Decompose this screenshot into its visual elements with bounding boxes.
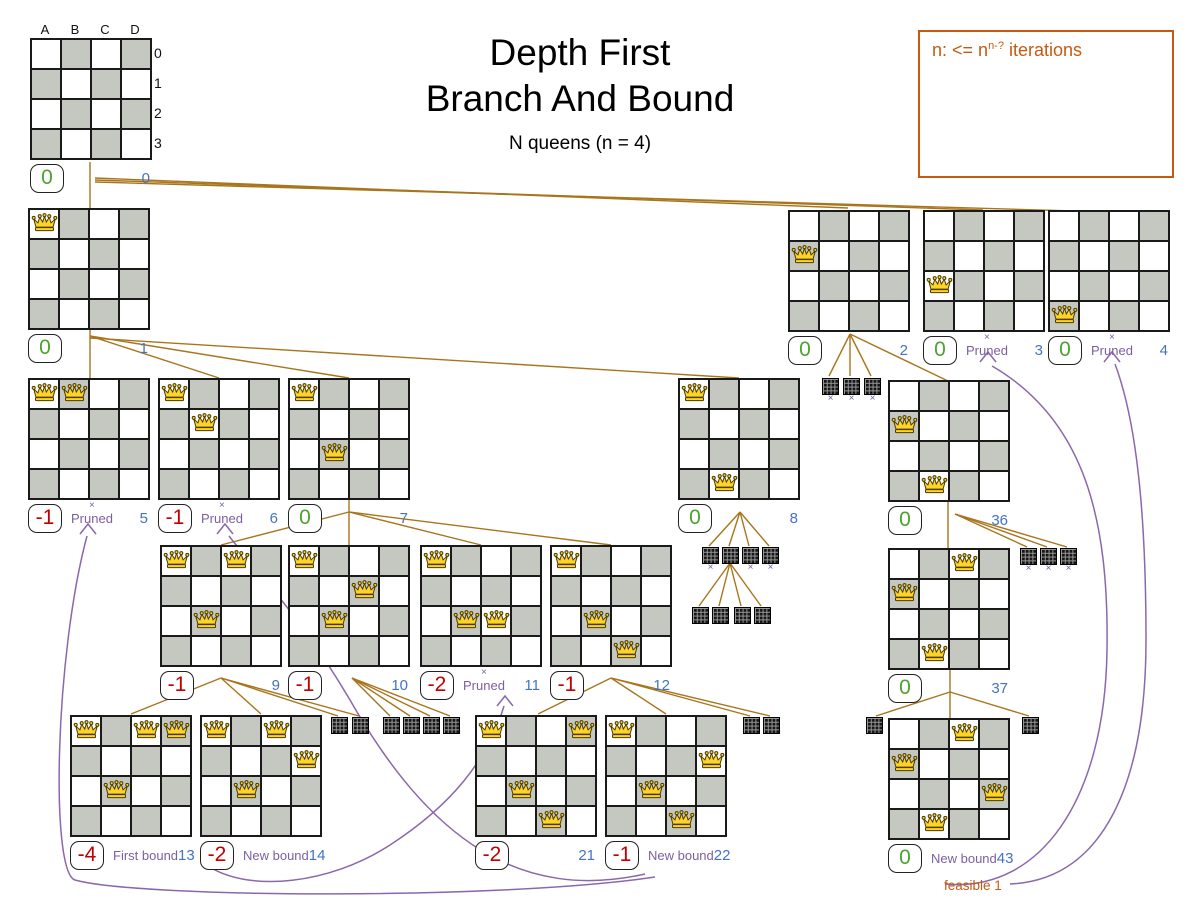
board-cell — [289, 379, 319, 409]
queen-icon — [291, 383, 318, 405]
tree-node-1: 0 1 — [28, 208, 150, 364]
board-cell — [201, 776, 231, 806]
chessboard — [888, 718, 1010, 840]
board-cell — [819, 211, 849, 241]
board-cell — [159, 439, 189, 469]
queen-icon — [613, 640, 640, 662]
pruned-x-mark: × — [1046, 563, 1052, 574]
node-footer: -1 ×Pruned 5 — [28, 502, 150, 534]
score-badge: -2 — [475, 841, 509, 870]
queen-icon — [73, 720, 100, 742]
board-cell — [161, 546, 191, 576]
tree-node-12: -1 12 — [550, 545, 672, 701]
board-cell — [506, 746, 536, 776]
board-cell — [219, 469, 249, 499]
feasible-label: feasible 1 — [944, 878, 1002, 893]
board-cell — [119, 379, 149, 409]
board-cell — [349, 606, 379, 636]
node-footer: 0 ×Pruned 3 — [923, 334, 1045, 366]
chessboard — [288, 545, 410, 667]
node-id: 1 — [140, 340, 150, 357]
board-cell — [379, 606, 409, 636]
board-cell — [849, 241, 879, 271]
board-cell — [101, 716, 131, 746]
queen-icon — [31, 383, 58, 405]
board-cell — [29, 299, 59, 329]
node-id: 10 — [391, 677, 410, 694]
mini-board-icon — [1022, 717, 1039, 734]
board-cell — [919, 639, 949, 669]
board-cell — [59, 239, 89, 269]
queen-icon — [951, 723, 978, 745]
board-cell — [1139, 271, 1169, 301]
score-badge: -1 — [158, 504, 192, 533]
board-cell — [666, 806, 696, 836]
queen-icon — [203, 720, 230, 742]
queen-icon — [193, 610, 220, 632]
legend-text-prefix: n: <= n — [932, 40, 988, 60]
board-cell — [231, 776, 261, 806]
board-cell — [641, 606, 671, 636]
tree-node-3: 0 ×Pruned 3 — [923, 210, 1045, 366]
board-cell — [319, 379, 349, 409]
board-cell — [919, 719, 949, 749]
board-cell — [789, 271, 819, 301]
board-cell — [481, 546, 511, 576]
board-cell — [819, 301, 849, 331]
board-cell — [636, 776, 666, 806]
score-badge: -2 — [420, 671, 454, 700]
mini-board-icon: × — [742, 547, 759, 564]
board-cell — [59, 299, 89, 329]
board-cell — [511, 636, 541, 666]
board-cell — [709, 379, 739, 409]
board-cell — [1139, 211, 1169, 241]
board-cell — [611, 606, 641, 636]
queen-icon — [638, 780, 665, 802]
board-cell — [29, 209, 59, 239]
board-cell — [319, 606, 349, 636]
board-cell — [919, 609, 949, 639]
board-cell — [679, 469, 709, 499]
mini-board-icon: × — [1040, 548, 1057, 565]
board-cell — [101, 746, 131, 776]
board-cell — [949, 749, 979, 779]
node-id: 6 — [270, 510, 280, 527]
node-status-label: ×Pruned — [201, 511, 243, 526]
board-cell — [511, 606, 541, 636]
board-cell — [289, 606, 319, 636]
node-status-label: New bound — [648, 848, 714, 863]
board-cell — [679, 439, 709, 469]
board-cell — [261, 746, 291, 776]
queen-icon — [423, 550, 450, 572]
board-cell — [919, 471, 949, 501]
board-cell — [566, 806, 596, 836]
board-cell — [131, 776, 161, 806]
board-cell — [191, 546, 221, 576]
board-cell — [566, 746, 596, 776]
board-cell — [289, 409, 319, 439]
board-cell — [636, 746, 666, 776]
score-badge: -1 — [288, 671, 322, 700]
board-cell — [984, 241, 1014, 271]
node-id: 9 — [272, 677, 282, 694]
board-cell — [31, 69, 61, 99]
board-cell — [121, 99, 151, 129]
board-cell — [59, 469, 89, 499]
board-cell — [289, 546, 319, 576]
board-cell — [949, 411, 979, 441]
board-cell — [984, 271, 1014, 301]
tree-node-5: -1 ×Pruned 5 — [28, 378, 150, 534]
board-cell — [551, 576, 581, 606]
board-cell — [221, 546, 251, 576]
board-cell — [219, 409, 249, 439]
board-cell — [919, 441, 949, 471]
pruned-x-mark: × — [1066, 563, 1072, 574]
board-cell — [289, 576, 319, 606]
queen-icon — [263, 720, 290, 742]
board-cell — [161, 576, 191, 606]
chessboard — [923, 210, 1045, 332]
board-cell — [119, 209, 149, 239]
board-cell — [379, 379, 409, 409]
board-cell — [59, 209, 89, 239]
board-cell — [949, 381, 979, 411]
chessboard — [788, 210, 910, 332]
queen-icon — [981, 783, 1008, 805]
board-cell — [251, 546, 281, 576]
board-cell — [849, 301, 879, 331]
board-cell — [636, 806, 666, 836]
board-cell — [1079, 211, 1109, 241]
chessboard — [550, 545, 672, 667]
chessboard — [28, 208, 150, 330]
board-cell — [119, 299, 149, 329]
board-cell — [889, 441, 919, 471]
mini-board-icon: × — [822, 378, 839, 395]
score-badge: 0 — [788, 336, 822, 365]
tree-node-36: 0 36 — [888, 380, 1010, 536]
board-cell — [231, 806, 261, 836]
queen-icon — [921, 813, 948, 835]
board-cell — [979, 549, 1009, 579]
board-cell — [349, 576, 379, 606]
node-id: 43 — [997, 850, 1016, 867]
queen-icon — [293, 750, 320, 772]
board-cell — [319, 439, 349, 469]
tree-node-37: 0 37 — [888, 548, 1010, 704]
board-cell — [739, 409, 769, 439]
chessboard — [70, 715, 192, 837]
queen-icon — [161, 383, 188, 405]
pruned-x-mark: × — [748, 562, 754, 573]
queen-icon — [103, 780, 130, 802]
board-cell — [29, 469, 59, 499]
board-cell — [819, 271, 849, 301]
board-cell — [1109, 271, 1139, 301]
queen-icon — [538, 810, 565, 832]
node-status-label: New bound — [931, 851, 997, 866]
queen-icon — [291, 550, 318, 572]
board-cell — [29, 379, 59, 409]
board-cell — [89, 209, 119, 239]
board-cell — [581, 576, 611, 606]
board-cell — [71, 746, 101, 776]
board-cell — [769, 409, 799, 439]
board-cell — [919, 749, 949, 779]
node-id: 13 — [178, 847, 197, 864]
board-cell — [789, 211, 819, 241]
node-footer: 0 New bound 43 — [888, 842, 1010, 874]
board-cell — [31, 99, 61, 129]
tree-node-6: -1 ×Pruned 6 — [158, 378, 280, 534]
queen-icon — [163, 720, 190, 742]
score-badge: 0 — [678, 504, 712, 533]
board-cell — [1139, 241, 1169, 271]
mini-board-icon — [692, 607, 709, 624]
board-cell — [161, 636, 191, 666]
pruned-x-mark: × — [1026, 563, 1032, 574]
board-cell — [201, 746, 231, 776]
mini-board-icon: × — [843, 378, 860, 395]
pruned-x-mark: × — [708, 562, 714, 573]
board-cell — [889, 749, 919, 779]
node-footer: -1 New bound 22 — [605, 839, 727, 871]
board-cell — [379, 636, 409, 666]
board-cell — [251, 606, 281, 636]
board-cell — [924, 271, 954, 301]
board-cell — [451, 576, 481, 606]
node-footer: 0 0 — [30, 162, 152, 194]
board-cell — [379, 576, 409, 606]
tree-node-9: -1 9 — [160, 545, 282, 701]
node-id: 22 — [714, 847, 733, 864]
board-cell — [421, 576, 451, 606]
board-cell — [1049, 271, 1079, 301]
tree-node-14: -2 New bound 14 — [200, 715, 322, 871]
board-cell — [949, 719, 979, 749]
board-cell — [789, 301, 819, 331]
pruned-x-mark: × — [219, 500, 225, 511]
board-cell — [1109, 211, 1139, 241]
score-badge: -2 — [200, 841, 234, 870]
board-cell — [506, 776, 536, 806]
board-cell — [159, 409, 189, 439]
board-cell — [161, 716, 191, 746]
board-cell — [349, 409, 379, 439]
mini-board-icon — [423, 717, 440, 734]
board-cell — [979, 809, 1009, 839]
board-cell — [769, 379, 799, 409]
board-cell — [979, 441, 1009, 471]
queen-icon — [698, 750, 725, 772]
score-badge: 0 — [28, 334, 62, 363]
board-cell — [251, 636, 281, 666]
column-labels: ABCD — [30, 22, 150, 37]
board-cell — [979, 639, 1009, 669]
board-cell — [91, 129, 121, 159]
node-footer: -2 21 — [475, 839, 597, 871]
board-cell — [121, 39, 151, 69]
board-cell — [476, 746, 506, 776]
board-cell — [769, 439, 799, 469]
board-cell — [161, 806, 191, 836]
board-cell — [611, 636, 641, 666]
board-cell — [636, 716, 666, 746]
board-cell — [481, 606, 511, 636]
score-badge: -1 — [550, 671, 584, 700]
board-cell — [349, 636, 379, 666]
board-cell — [59, 439, 89, 469]
mini-board-icon — [383, 717, 400, 734]
queen-icon — [223, 550, 250, 572]
board-cell — [919, 579, 949, 609]
tree-node-13: -4 First bound 13 — [70, 715, 192, 871]
node-id: 2 — [900, 342, 910, 359]
board-cell — [984, 211, 1014, 241]
chessboard — [475, 715, 597, 837]
score-badge: -4 — [70, 841, 104, 870]
board-cell — [131, 746, 161, 776]
mini-board-icon — [734, 607, 751, 624]
board-cell — [919, 809, 949, 839]
node-id: 7 — [400, 510, 410, 527]
queen-icon — [1051, 305, 1078, 327]
board-cell — [611, 546, 641, 576]
mini-board-icon — [443, 717, 460, 734]
board-cell — [1014, 241, 1044, 271]
queen-icon — [921, 643, 948, 665]
board-cell — [159, 379, 189, 409]
tree-node-22: -1 New bound 22 — [605, 715, 727, 871]
board-cell — [566, 776, 596, 806]
board-cell — [1049, 211, 1079, 241]
board-cell — [919, 381, 949, 411]
board-cell — [161, 776, 191, 806]
chessboard — [288, 378, 410, 500]
board-cell — [1079, 271, 1109, 301]
board-cell — [1139, 301, 1169, 331]
board-cell — [61, 129, 91, 159]
board-cell — [91, 99, 121, 129]
mini-board-icon: × — [702, 547, 719, 564]
tree-node-0: ABCD0123 0 0 — [30, 22, 152, 194]
board-cell — [421, 546, 451, 576]
board-cell — [121, 129, 151, 159]
score-badge: 0 — [923, 336, 957, 365]
board-cell — [1079, 301, 1109, 331]
queen-icon — [711, 473, 738, 495]
board-cell — [666, 776, 696, 806]
board-cell — [89, 409, 119, 439]
board-cell — [536, 806, 566, 836]
board-cell — [349, 546, 379, 576]
board-cell — [506, 716, 536, 746]
queen-icon — [791, 245, 818, 267]
board-cell — [191, 606, 221, 636]
node-id: 14 — [309, 847, 328, 864]
board-cell — [319, 636, 349, 666]
board-cell — [31, 39, 61, 69]
tree-node-4: 0 ×Pruned 4 — [1048, 210, 1170, 366]
board-cell — [476, 716, 506, 746]
pruned-x-mark: × — [828, 393, 834, 404]
mini-board-icon — [331, 717, 348, 734]
queen-icon — [31, 213, 58, 235]
board-cell — [131, 716, 161, 746]
queen-icon — [891, 415, 918, 437]
board-cell — [219, 379, 249, 409]
pruned-x-mark: × — [481, 667, 487, 678]
board-cell — [476, 806, 506, 836]
node-footer: 0 36 — [888, 504, 1010, 536]
board-cell — [739, 469, 769, 499]
board-cell — [709, 439, 739, 469]
board-cell — [849, 271, 879, 301]
mini-board-icon: × — [864, 378, 881, 395]
queen-icon — [608, 720, 635, 742]
board-cell — [59, 409, 89, 439]
board-cell — [879, 211, 909, 241]
mini-board-icon — [743, 717, 760, 734]
score-badge: 0 — [888, 844, 922, 873]
board-cell — [189, 439, 219, 469]
board-cell — [606, 776, 636, 806]
board-cell — [89, 379, 119, 409]
node-id: 37 — [991, 680, 1010, 697]
board-cell — [291, 746, 321, 776]
node-id: 3 — [1035, 342, 1045, 359]
board-cell — [249, 379, 279, 409]
board-cell — [119, 439, 149, 469]
board-cell — [89, 269, 119, 299]
tree-node-8: 0 8 — [678, 378, 800, 534]
board-cell — [889, 579, 919, 609]
node-status-label: New bound — [243, 848, 309, 863]
chessboard — [30, 38, 152, 160]
tree-node-10: -1 10 — [288, 545, 410, 701]
board-cell — [349, 469, 379, 499]
board-cell — [91, 39, 121, 69]
board-cell — [984, 301, 1014, 331]
mini-board-icon: × — [1060, 548, 1077, 565]
page-subtitle: N queens (n = 4) — [300, 133, 860, 155]
node-id: 4 — [1160, 342, 1170, 359]
board-cell — [119, 239, 149, 269]
board-cell — [319, 469, 349, 499]
board-cell — [219, 439, 249, 469]
pruned-x-mark: × — [984, 332, 990, 343]
board-cell — [29, 439, 59, 469]
node-footer: -2 New bound 14 — [200, 839, 322, 871]
chessboard — [28, 378, 150, 500]
board-cell — [71, 716, 101, 746]
score-badge: -1 — [160, 671, 194, 700]
board-cell — [979, 609, 1009, 639]
board-cell — [379, 409, 409, 439]
board-cell — [919, 411, 949, 441]
node-footer: -1 10 — [288, 669, 410, 701]
queen-icon — [568, 720, 595, 742]
tree-node-11: -2 ×Pruned 11 — [420, 545, 542, 701]
board-cell — [1079, 241, 1109, 271]
board-cell — [379, 469, 409, 499]
queen-icon — [681, 383, 708, 405]
board-cell — [319, 576, 349, 606]
board-cell — [421, 606, 451, 636]
